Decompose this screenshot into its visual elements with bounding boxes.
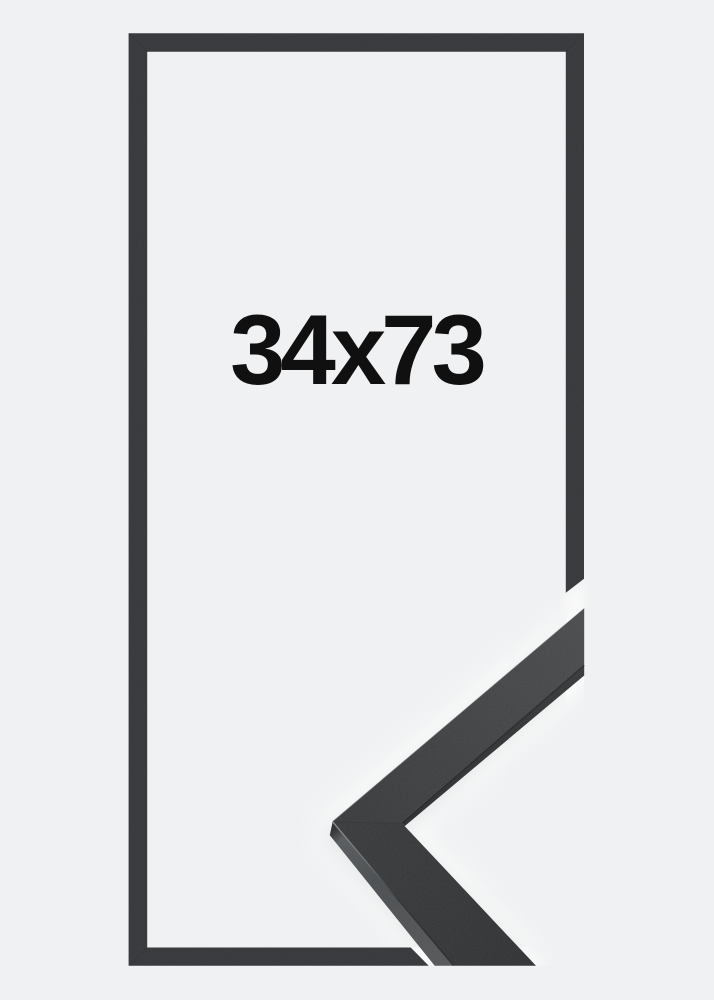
- svg-text:34x73: 34x73: [230, 295, 483, 406]
